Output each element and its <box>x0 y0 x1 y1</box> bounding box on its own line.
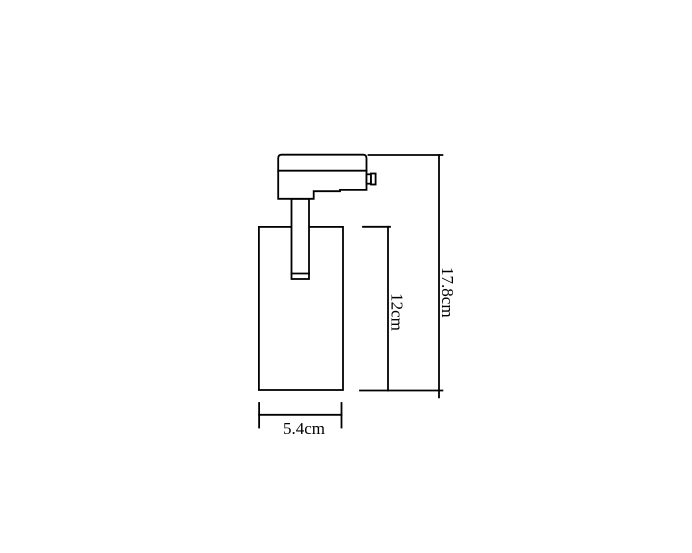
svg-text:5.4cm: 5.4cm <box>283 419 325 438</box>
svg-text:12cm: 12cm <box>387 293 406 331</box>
svg-text:17.8cm: 17.8cm <box>438 267 457 318</box>
